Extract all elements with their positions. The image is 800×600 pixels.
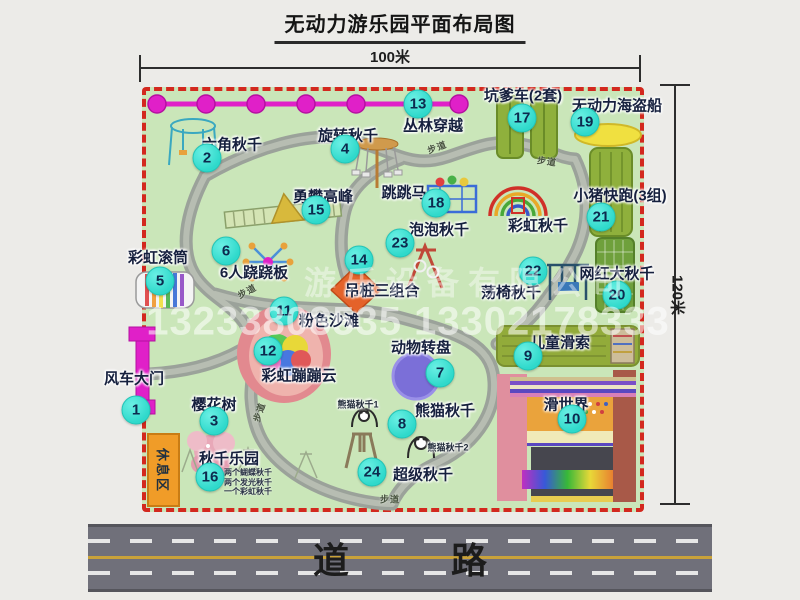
- attraction-badge-16: 16: [196, 463, 225, 492]
- attraction-badge-9: 9: [514, 342, 543, 371]
- trail-label-1: 步道: [536, 153, 558, 169]
- attraction-badge-23: 23: [386, 229, 415, 258]
- attraction-badge-11: 11: [270, 297, 299, 326]
- attraction-badge-14: 14: [345, 246, 374, 275]
- attraction-badge-13: 13: [404, 90, 433, 119]
- labels-layer: 风车大门1六角秋千2樱花树3旋转秋千4彩虹滚筒56人跷跷板6动物转盘7熊猫秋千8…: [0, 0, 800, 600]
- trail-label-0: 步道: [425, 137, 448, 156]
- attraction-badge-2: 2: [193, 144, 222, 173]
- attraction-label-1: 风车大门: [104, 368, 164, 389]
- attraction-badge-6: 6: [212, 237, 241, 266]
- attraction-label-23: 泡泡秋千: [409, 219, 469, 240]
- attraction-sublabels-16: 两个蝴蝶秋千两个发光秋千一个彩虹秋千: [224, 468, 272, 497]
- attraction-label-14: 吊桩三组合: [344, 280, 419, 301]
- attraction-label-8: 熊猫秋千: [415, 400, 475, 421]
- trail-label-2: 步道: [235, 281, 259, 302]
- attraction-label-11: 粉色沙滩: [299, 310, 359, 331]
- attraction-label-彩虹秋千: 彩虹秋千: [508, 215, 568, 236]
- trail-label-3: 步道: [250, 400, 269, 423]
- attraction-badge-4: 4: [331, 135, 360, 164]
- attraction-badge-19: 19: [571, 108, 600, 137]
- attraction-badge-10: 10: [558, 405, 587, 434]
- attraction-label-5: 彩虹滚筒: [128, 247, 188, 268]
- attraction-badge-24: 24: [358, 458, 387, 487]
- attraction-label-熊猫秋千1: 熊猫秋千1: [337, 398, 378, 411]
- attraction-label-17: 坑爹车(2套): [484, 85, 562, 106]
- attraction-badge-3: 3: [200, 407, 229, 436]
- attraction-badge-17: 17: [508, 104, 537, 133]
- attraction-badge-12: 12: [254, 337, 283, 366]
- attraction-label-7: 动物转盘: [391, 337, 451, 358]
- trail-label-4: 步道: [380, 493, 400, 506]
- attraction-badge-18: 18: [422, 189, 451, 218]
- attraction-badge-21: 21: [587, 203, 616, 232]
- attraction-badge-8: 8: [388, 410, 417, 439]
- attraction-badge-1: 1: [122, 396, 151, 425]
- attraction-badge-22: 22: [519, 257, 548, 286]
- attraction-badge-15: 15: [302, 196, 331, 225]
- attraction-label-21: 小猪快跑(3组): [573, 185, 666, 206]
- attraction-label-熊猫秋千2: 熊猫秋千2: [427, 441, 468, 454]
- attraction-badge-20: 20: [603, 281, 632, 310]
- attraction-label-12: 彩虹蹦蹦云: [261, 365, 336, 386]
- attraction-label-13: 丛林穿越: [403, 115, 463, 136]
- playground-plan-page: { "title": "无动力游乐园平面布局图", "dimensions": …: [0, 0, 800, 600]
- attraction-badge-5: 5: [146, 267, 175, 296]
- attraction-label-18: 跳跳马: [381, 182, 426, 203]
- attraction-label-24: 超级秋千: [393, 464, 453, 485]
- attraction-badge-7: 7: [426, 359, 455, 388]
